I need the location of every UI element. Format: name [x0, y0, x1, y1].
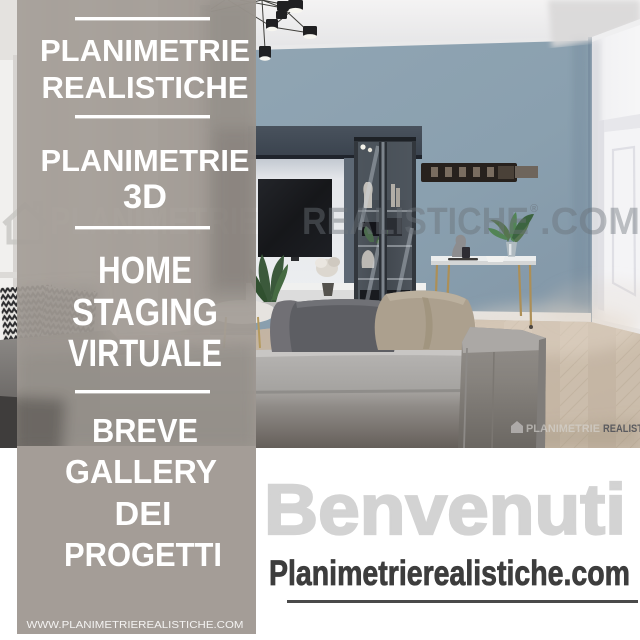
svg-text:REALISTICHE: REALISTICHE	[302, 201, 529, 243]
svg-text:BREVE: BREVE	[92, 412, 198, 449]
svg-text:GALLERY: GALLERY	[65, 453, 217, 490]
svg-text:Planimetrierealistiche.com: Planimetrierealistiche.com	[269, 554, 630, 593]
svg-text:Benvenuti: Benvenuti	[264, 471, 626, 550]
svg-text:DEI: DEI	[115, 495, 172, 532]
svg-text:.COM: .COM	[540, 201, 640, 243]
svg-text:PLANIMETRIE: PLANIMETRIE	[526, 423, 600, 435]
svg-text:PLANIMETRIE: PLANIMETRIE	[40, 33, 250, 68]
svg-text:PLANIMETRIE: PLANIMETRIE	[41, 143, 250, 178]
svg-text:3D: 3D	[123, 178, 167, 216]
svg-text:HOME: HOME	[98, 250, 192, 292]
svg-text:REALIST: REALIST	[603, 423, 640, 435]
svg-text:REALISTICHE: REALISTICHE	[42, 70, 249, 105]
svg-text:STAGING: STAGING	[72, 292, 218, 334]
svg-text:®: ®	[530, 203, 538, 215]
svg-text:PROGETTI: PROGETTI	[64, 536, 222, 573]
svg-text:VIRTUALE: VIRTUALE	[68, 333, 222, 375]
svg-text:WWW.PLANIMETRIEREALISTICHE.COM: WWW.PLANIMETRIEREALISTICHE.COM	[27, 619, 244, 631]
